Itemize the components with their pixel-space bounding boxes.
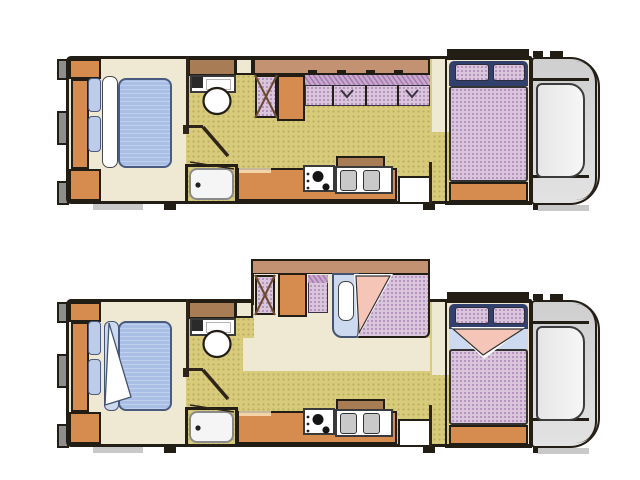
sofa-bed-mattress [356, 273, 430, 338]
cabover-pillow [493, 307, 525, 324]
cabover-roof-trim [447, 49, 529, 56]
chassis-mark [164, 204, 176, 210]
page: { "canvas": { "width": 640, "height": 48… [0, 0, 640, 480]
rear-cabinet-bottom [69, 169, 101, 201]
sink-basin [363, 170, 380, 191]
sink-faucet [192, 77, 203, 88]
cabover-pillow [455, 64, 489, 81]
cabover-mattress [449, 86, 528, 182]
rear-cabinet-bottom [69, 412, 101, 444]
door-step-mark [423, 447, 435, 453]
sofa-bed-pillow [338, 281, 354, 321]
rear-cabinet-top [69, 302, 101, 322]
wardrobe [255, 275, 275, 315]
cab-trim-line [533, 321, 589, 324]
wardrobe [255, 75, 277, 118]
shower-pan [189, 168, 234, 200]
bed-pillow [88, 321, 101, 355]
cab-windshield [536, 83, 585, 178]
cab-trim-line [533, 78, 589, 81]
floorplan-bottom [52, 247, 608, 462]
cushion-divider [332, 85, 334, 106]
sink-basin [363, 413, 380, 434]
bed-pillow [88, 116, 101, 152]
running-board [538, 205, 589, 211]
sofa-seat-cushions [305, 85, 430, 106]
cabover-pillow [493, 64, 525, 81]
door-jamb [183, 125, 189, 134]
cushion-divider [397, 85, 399, 106]
counter-bevel [239, 411, 271, 416]
sink-bowl [206, 322, 231, 333]
door-jamb [183, 368, 189, 377]
entry-wall [429, 405, 432, 447]
bed-bolster [102, 76, 118, 168]
sink-basin [340, 170, 357, 191]
bed-sheet-panel [104, 321, 119, 411]
cabover-pillow [455, 307, 489, 324]
running-board [93, 204, 143, 210]
shower-pan [189, 411, 234, 443]
rear-cabinet-top [69, 59, 101, 79]
cabover-mattress [449, 349, 528, 425]
counter-bevel [239, 168, 271, 173]
sofa-side-cabinet [277, 75, 305, 121]
cabover-roof-trim [447, 292, 529, 299]
sink-basin [340, 413, 357, 434]
chassis-mark [164, 447, 176, 453]
rear-bed-mattress [118, 78, 172, 168]
sofa-cushion-edge [308, 275, 328, 283]
rear-wardrobe-column [71, 322, 89, 412]
entry-step [398, 419, 429, 445]
vanity-cabinet [188, 301, 236, 319]
living-floor [243, 338, 430, 371]
vanity-cabinet [188, 58, 236, 76]
sofa-side-cabinet [278, 273, 307, 317]
bed-pillow [88, 78, 101, 112]
overhead-cabinet [235, 58, 253, 75]
bathroom-wall [186, 56, 189, 132]
stove-cooktop [303, 165, 335, 192]
cushion-divider [365, 85, 367, 106]
door-step-mark [423, 204, 435, 210]
entry-wall [429, 162, 432, 204]
cabover-step-cabinet [449, 182, 528, 202]
sink-bowl [206, 79, 231, 90]
rear-bed-mattress [118, 321, 172, 411]
cab-windshield [536, 326, 585, 421]
running-board [538, 448, 589, 454]
stove-cooktop [303, 408, 335, 435]
bed-pillow [88, 359, 101, 395]
entry-step [398, 176, 429, 202]
sink-faucet [192, 320, 203, 331]
running-board [93, 447, 143, 453]
bathroom-wall [186, 299, 189, 375]
sofa-backrest [305, 75, 430, 85]
cabover-step-cabinet [449, 425, 528, 445]
floorplan-top [52, 4, 608, 219]
rear-wardrobe-column [71, 79, 89, 169]
